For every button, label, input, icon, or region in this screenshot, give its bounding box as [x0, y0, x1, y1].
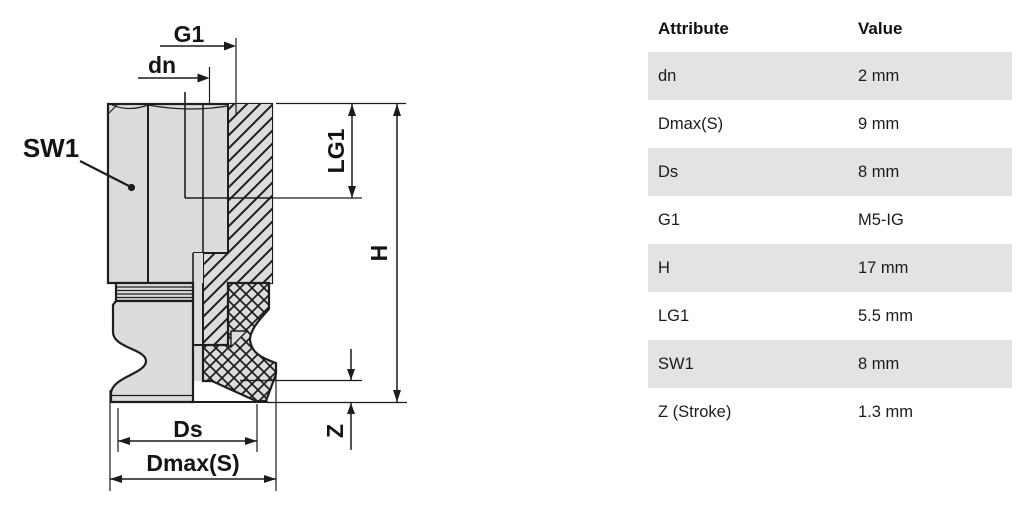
bellows-cup-exterior [111, 301, 193, 402]
attribute-cell: Dmax(S) [648, 115, 858, 134]
g1-label: G1 [174, 21, 205, 47]
table-row: LG1 5.5 mm [648, 292, 1012, 340]
z-label: Z [322, 424, 348, 438]
attribute-column-header: Attribute [648, 19, 858, 39]
attribute-cell: dn [648, 67, 858, 86]
attribute-cell: H [648, 259, 858, 278]
suction-cup-technical-drawing: G1 dn SW1 LG1 H [0, 0, 640, 508]
page: G1 dn SW1 LG1 H [0, 0, 1024, 508]
table-row: Z (Stroke) 1.3 mm [648, 388, 1012, 436]
dimension-h: H [366, 104, 401, 402]
bore-channel [193, 253, 203, 381]
value-cell: M5-IG [858, 211, 1012, 230]
table-row: G1 M5-IG [648, 196, 1012, 244]
dmax-label: Dmax(S) [146, 450, 239, 476]
value-cell: 2 mm [858, 67, 1012, 86]
attribute-cell: LG1 [648, 307, 858, 326]
attribute-cell: G1 [648, 211, 858, 230]
table-row: SW1 8 mm [648, 340, 1012, 388]
value-cell: 8 mm [858, 163, 1012, 182]
value-column-header: Value [858, 19, 1012, 39]
value-cell: 8 mm [858, 355, 1012, 374]
spec-table: Attribute Value dn 2 mm Dmax(S) 9 mm Ds … [648, 6, 1012, 436]
value-cell: 17 mm [858, 259, 1012, 278]
value-cell: 5.5 mm [858, 307, 1012, 326]
dimension-ds: Ds [118, 404, 257, 452]
value-cell: 9 mm [858, 115, 1012, 134]
dimension-z: Z [322, 349, 355, 450]
attribute-cell: Z (Stroke) [648, 403, 858, 422]
spec-table-header: Attribute Value [648, 6, 1012, 52]
lg1-label: LG1 [323, 128, 349, 173]
table-row: Dmax(S) 9 mm [648, 100, 1012, 148]
h-label: H [366, 245, 392, 262]
attribute-cell: SW1 [648, 355, 858, 374]
table-row: dn 2 mm [648, 52, 1012, 100]
ribbed-collar [116, 283, 193, 301]
table-row: H 17 mm [648, 244, 1012, 292]
table-row: Ds 8 mm [648, 148, 1012, 196]
dimension-dn: dn [138, 52, 210, 83]
sw1-label: SW1 [23, 133, 79, 163]
value-cell: 1.3 mm [858, 403, 1012, 422]
attribute-cell: Ds [648, 163, 858, 182]
ds-label: Ds [173, 416, 202, 442]
dimension-g1: G1 [160, 21, 236, 51]
dimension-lg1: LG1 [323, 104, 356, 198]
dn-label: dn [148, 52, 176, 78]
